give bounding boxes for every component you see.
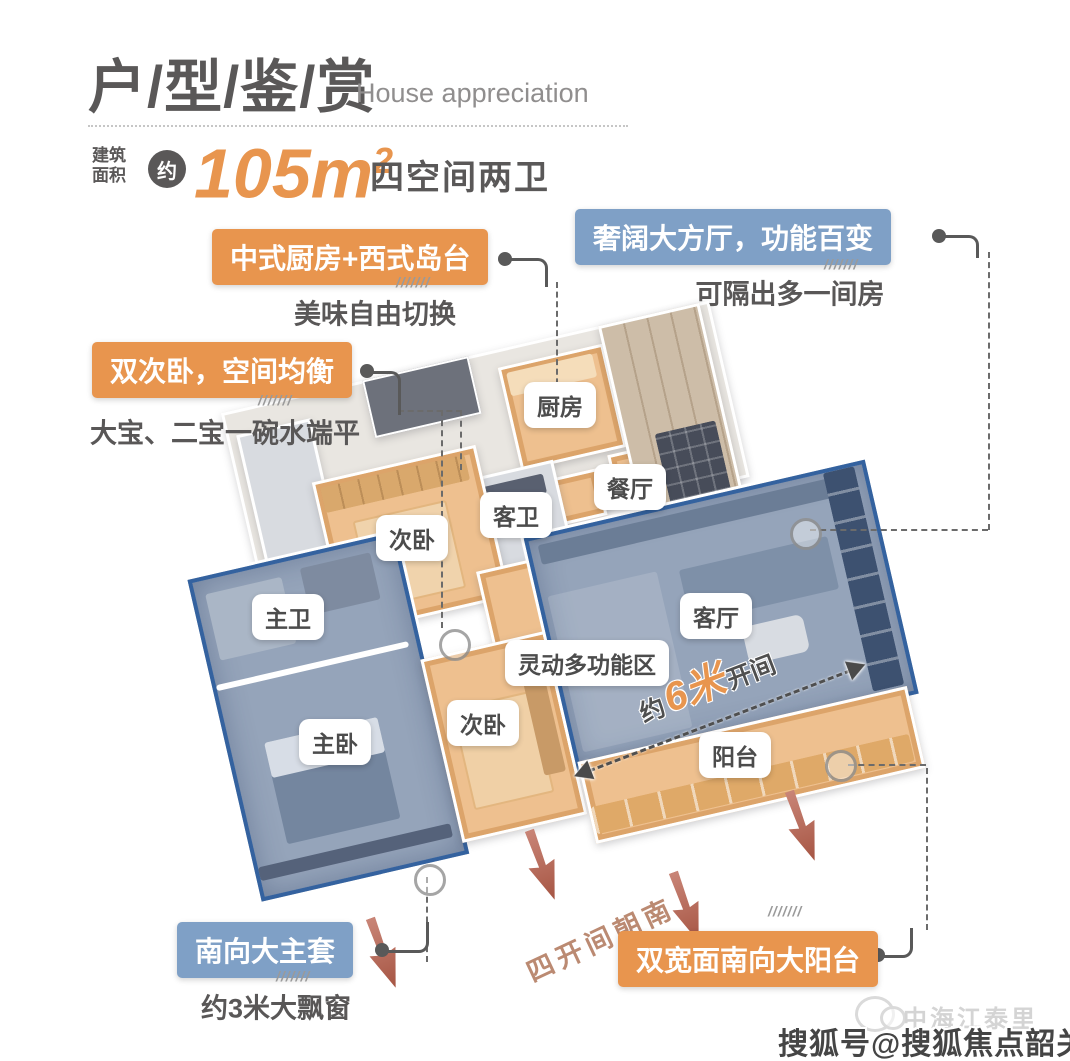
callout-master-suite: 南向大主套 — [177, 922, 353, 978]
desc-kitchen: 美味自由切换 — [294, 293, 456, 332]
area-value: 105m2 — [194, 126, 393, 208]
room-label-bedroom2: 次卧 — [376, 515, 448, 561]
callout-kitchen: 中式厨房+西式岛台 — [212, 229, 488, 285]
hatch-balcony: /////// — [768, 903, 802, 919]
connector-ring-bedroom3 — [439, 629, 471, 661]
hatch-master: /////// — [276, 968, 310, 984]
approx-badge: 约 — [148, 150, 186, 188]
area-unit: m — [311, 134, 373, 212]
room-label-multi-zone: 灵动多功能区 — [505, 640, 669, 686]
page-subtitle: House appreciation — [356, 78, 589, 109]
room-label-master-bedroom: 主卧 — [299, 719, 371, 765]
desc-master: 约3米大飘窗 — [201, 987, 351, 1026]
dashed-line-balcony-v — [926, 768, 928, 930]
connector-ring-master — [414, 864, 446, 896]
room-label-master-bath: 主卫 — [252, 594, 324, 640]
room-label-bedroom3: 次卧 — [447, 700, 519, 746]
connector-elbow-hall — [940, 235, 979, 258]
floorplan-poster: 户/型/鉴/赏 House appreciation 建筑 面积 约 105m2… — [0, 0, 1070, 1061]
room-label-balcony: 阳台 — [699, 732, 771, 778]
connector-ring-living — [790, 518, 822, 550]
connector-dot-master — [375, 943, 389, 957]
dashed-line-twin-h — [398, 410, 462, 412]
connector-dot-twin — [360, 364, 374, 378]
connector-elbow-master — [382, 922, 429, 953]
area-number: 105 — [194, 134, 311, 212]
hatch-twin: /////// — [258, 392, 292, 408]
dashed-line-twin-short — [460, 410, 462, 470]
room-label-living: 客厅 — [680, 593, 752, 639]
desc-hall: 可隔出多一间房 — [696, 273, 885, 312]
sohu-account-watermark: 搜狐号@搜狐焦点韶关站 — [778, 1019, 1070, 1061]
connector-elbow-kitchen — [505, 258, 548, 287]
hatch-hall: /////// — [824, 256, 858, 272]
dashed-line-balcony-h — [848, 764, 926, 766]
connector-dot-kitchen — [498, 252, 512, 266]
callout-twin-bedrooms: 双次卧，空间均衡 — [92, 342, 352, 398]
connector-ring-balcony — [825, 750, 857, 782]
hatch-kitchen: /////// — [396, 274, 430, 290]
dashed-line-kitchen — [556, 282, 558, 394]
room-label-guest-bath: 客卫 — [480, 492, 552, 538]
layout-spec: 四空间两卫 — [370, 150, 550, 199]
page-title: 户/型/鉴/赏 — [88, 40, 375, 124]
dashed-line-hall-v — [988, 252, 990, 530]
callout-balcony: 双宽面南向大阳台 — [618, 931, 878, 987]
connector-elbow-twin — [368, 371, 401, 415]
area-label-line2: 面积 — [92, 166, 126, 186]
connector-dot-hall — [932, 229, 946, 243]
dashed-line-hall-h — [810, 529, 988, 531]
desc-twin: 大宝、二宝一碗水端平 — [90, 412, 360, 451]
area-label-line1: 建筑 — [92, 146, 126, 166]
area-label: 建筑 面积 — [92, 146, 126, 186]
room-label-dining: 餐厅 — [594, 464, 666, 510]
room-label-kitchen: 厨房 — [524, 382, 596, 428]
